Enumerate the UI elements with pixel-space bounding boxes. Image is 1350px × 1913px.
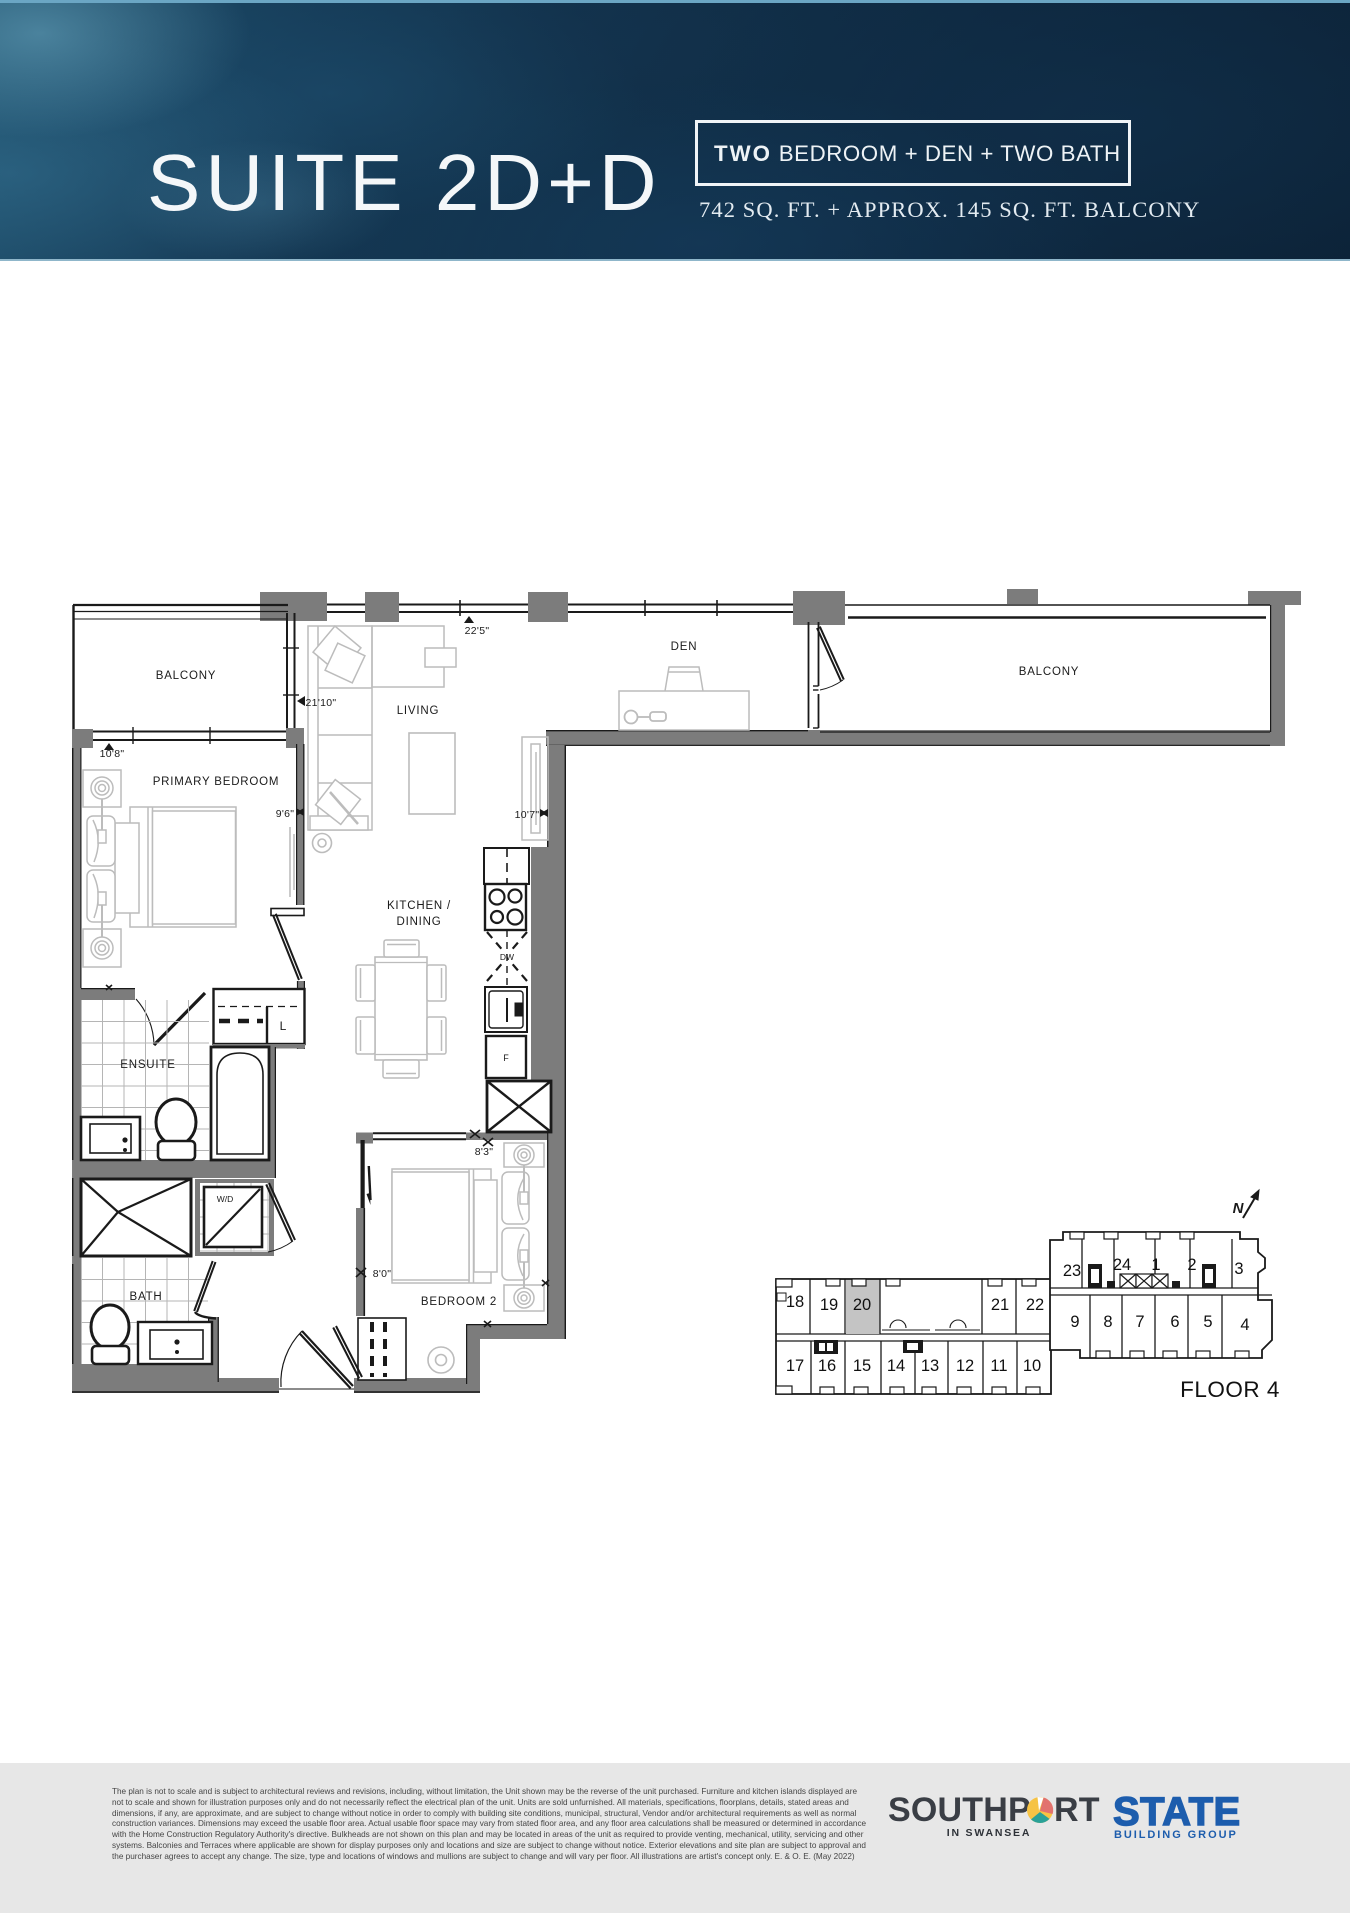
svg-text:18: 18 xyxy=(786,1293,804,1311)
svg-text:10'7": 10'7" xyxy=(515,809,540,821)
svg-text:DW: DW xyxy=(500,952,514,962)
svg-text:14: 14 xyxy=(887,1357,905,1375)
svg-text:PRIMARY BEDROOM: PRIMARY BEDROOM xyxy=(153,776,280,788)
svg-text:21'10": 21'10" xyxy=(306,697,337,709)
svg-text:9'6": 9'6" xyxy=(276,808,295,820)
svg-text:23: 23 xyxy=(1063,1262,1081,1280)
svg-text:10'8": 10'8" xyxy=(100,748,125,760)
svg-text:20: 20 xyxy=(853,1296,871,1314)
svg-text:ENSUITE: ENSUITE xyxy=(120,1059,175,1071)
svg-text:12: 12 xyxy=(956,1357,974,1375)
svg-text:24: 24 xyxy=(1113,1256,1131,1274)
svg-text:BALCONY: BALCONY xyxy=(156,670,217,682)
svg-text:DEN: DEN xyxy=(671,641,698,653)
svg-text:N: N xyxy=(1233,1200,1245,1217)
svg-text:STATE: STATE xyxy=(1113,1790,1241,1834)
svg-text:SOUTHP: SOUTHP xyxy=(888,1791,1031,1829)
svg-text:F: F xyxy=(503,1053,509,1063)
svg-text:FLOOR 4: FLOOR 4 xyxy=(1180,1377,1280,1402)
svg-text:19: 19 xyxy=(820,1296,838,1314)
svg-text:DINING: DINING xyxy=(396,916,441,928)
svg-text:IN SWANSEA: IN SWANSEA xyxy=(947,1827,1032,1839)
svg-text:22: 22 xyxy=(1026,1296,1044,1314)
svg-text:17: 17 xyxy=(786,1357,804,1375)
svg-text:10: 10 xyxy=(1023,1357,1041,1375)
svg-text:9: 9 xyxy=(1070,1313,1079,1331)
svg-text:1: 1 xyxy=(1151,1256,1160,1274)
svg-text:L: L xyxy=(280,1019,287,1033)
svg-text:8: 8 xyxy=(1103,1313,1112,1331)
svg-text:BATH: BATH xyxy=(129,1291,162,1303)
svg-text:BALCONY: BALCONY xyxy=(1019,666,1080,678)
svg-text:21: 21 xyxy=(991,1296,1009,1314)
svg-text:W/D: W/D xyxy=(217,1194,234,1204)
svg-text:8'0": 8'0" xyxy=(373,1268,392,1280)
svg-text:7: 7 xyxy=(1135,1313,1144,1331)
svg-text:LIVING: LIVING xyxy=(397,705,440,717)
svg-text:22'5": 22'5" xyxy=(465,625,490,637)
svg-text:8'3": 8'3" xyxy=(475,1146,494,1158)
svg-text:4: 4 xyxy=(1240,1316,1249,1334)
svg-text:16: 16 xyxy=(818,1357,836,1375)
svg-text:6: 6 xyxy=(1170,1313,1179,1331)
svg-text:2: 2 xyxy=(1187,1256,1196,1274)
svg-text:KITCHEN /: KITCHEN / xyxy=(387,900,451,912)
svg-text:11: 11 xyxy=(990,1357,1007,1375)
svg-text:5: 5 xyxy=(1203,1313,1212,1331)
svg-text:15: 15 xyxy=(853,1357,871,1375)
svg-text:13: 13 xyxy=(921,1357,939,1375)
svg-text:BEDROOM 2: BEDROOM 2 xyxy=(421,1296,497,1308)
svg-text:RT: RT xyxy=(1054,1791,1100,1829)
svg-text:3: 3 xyxy=(1234,1260,1243,1278)
